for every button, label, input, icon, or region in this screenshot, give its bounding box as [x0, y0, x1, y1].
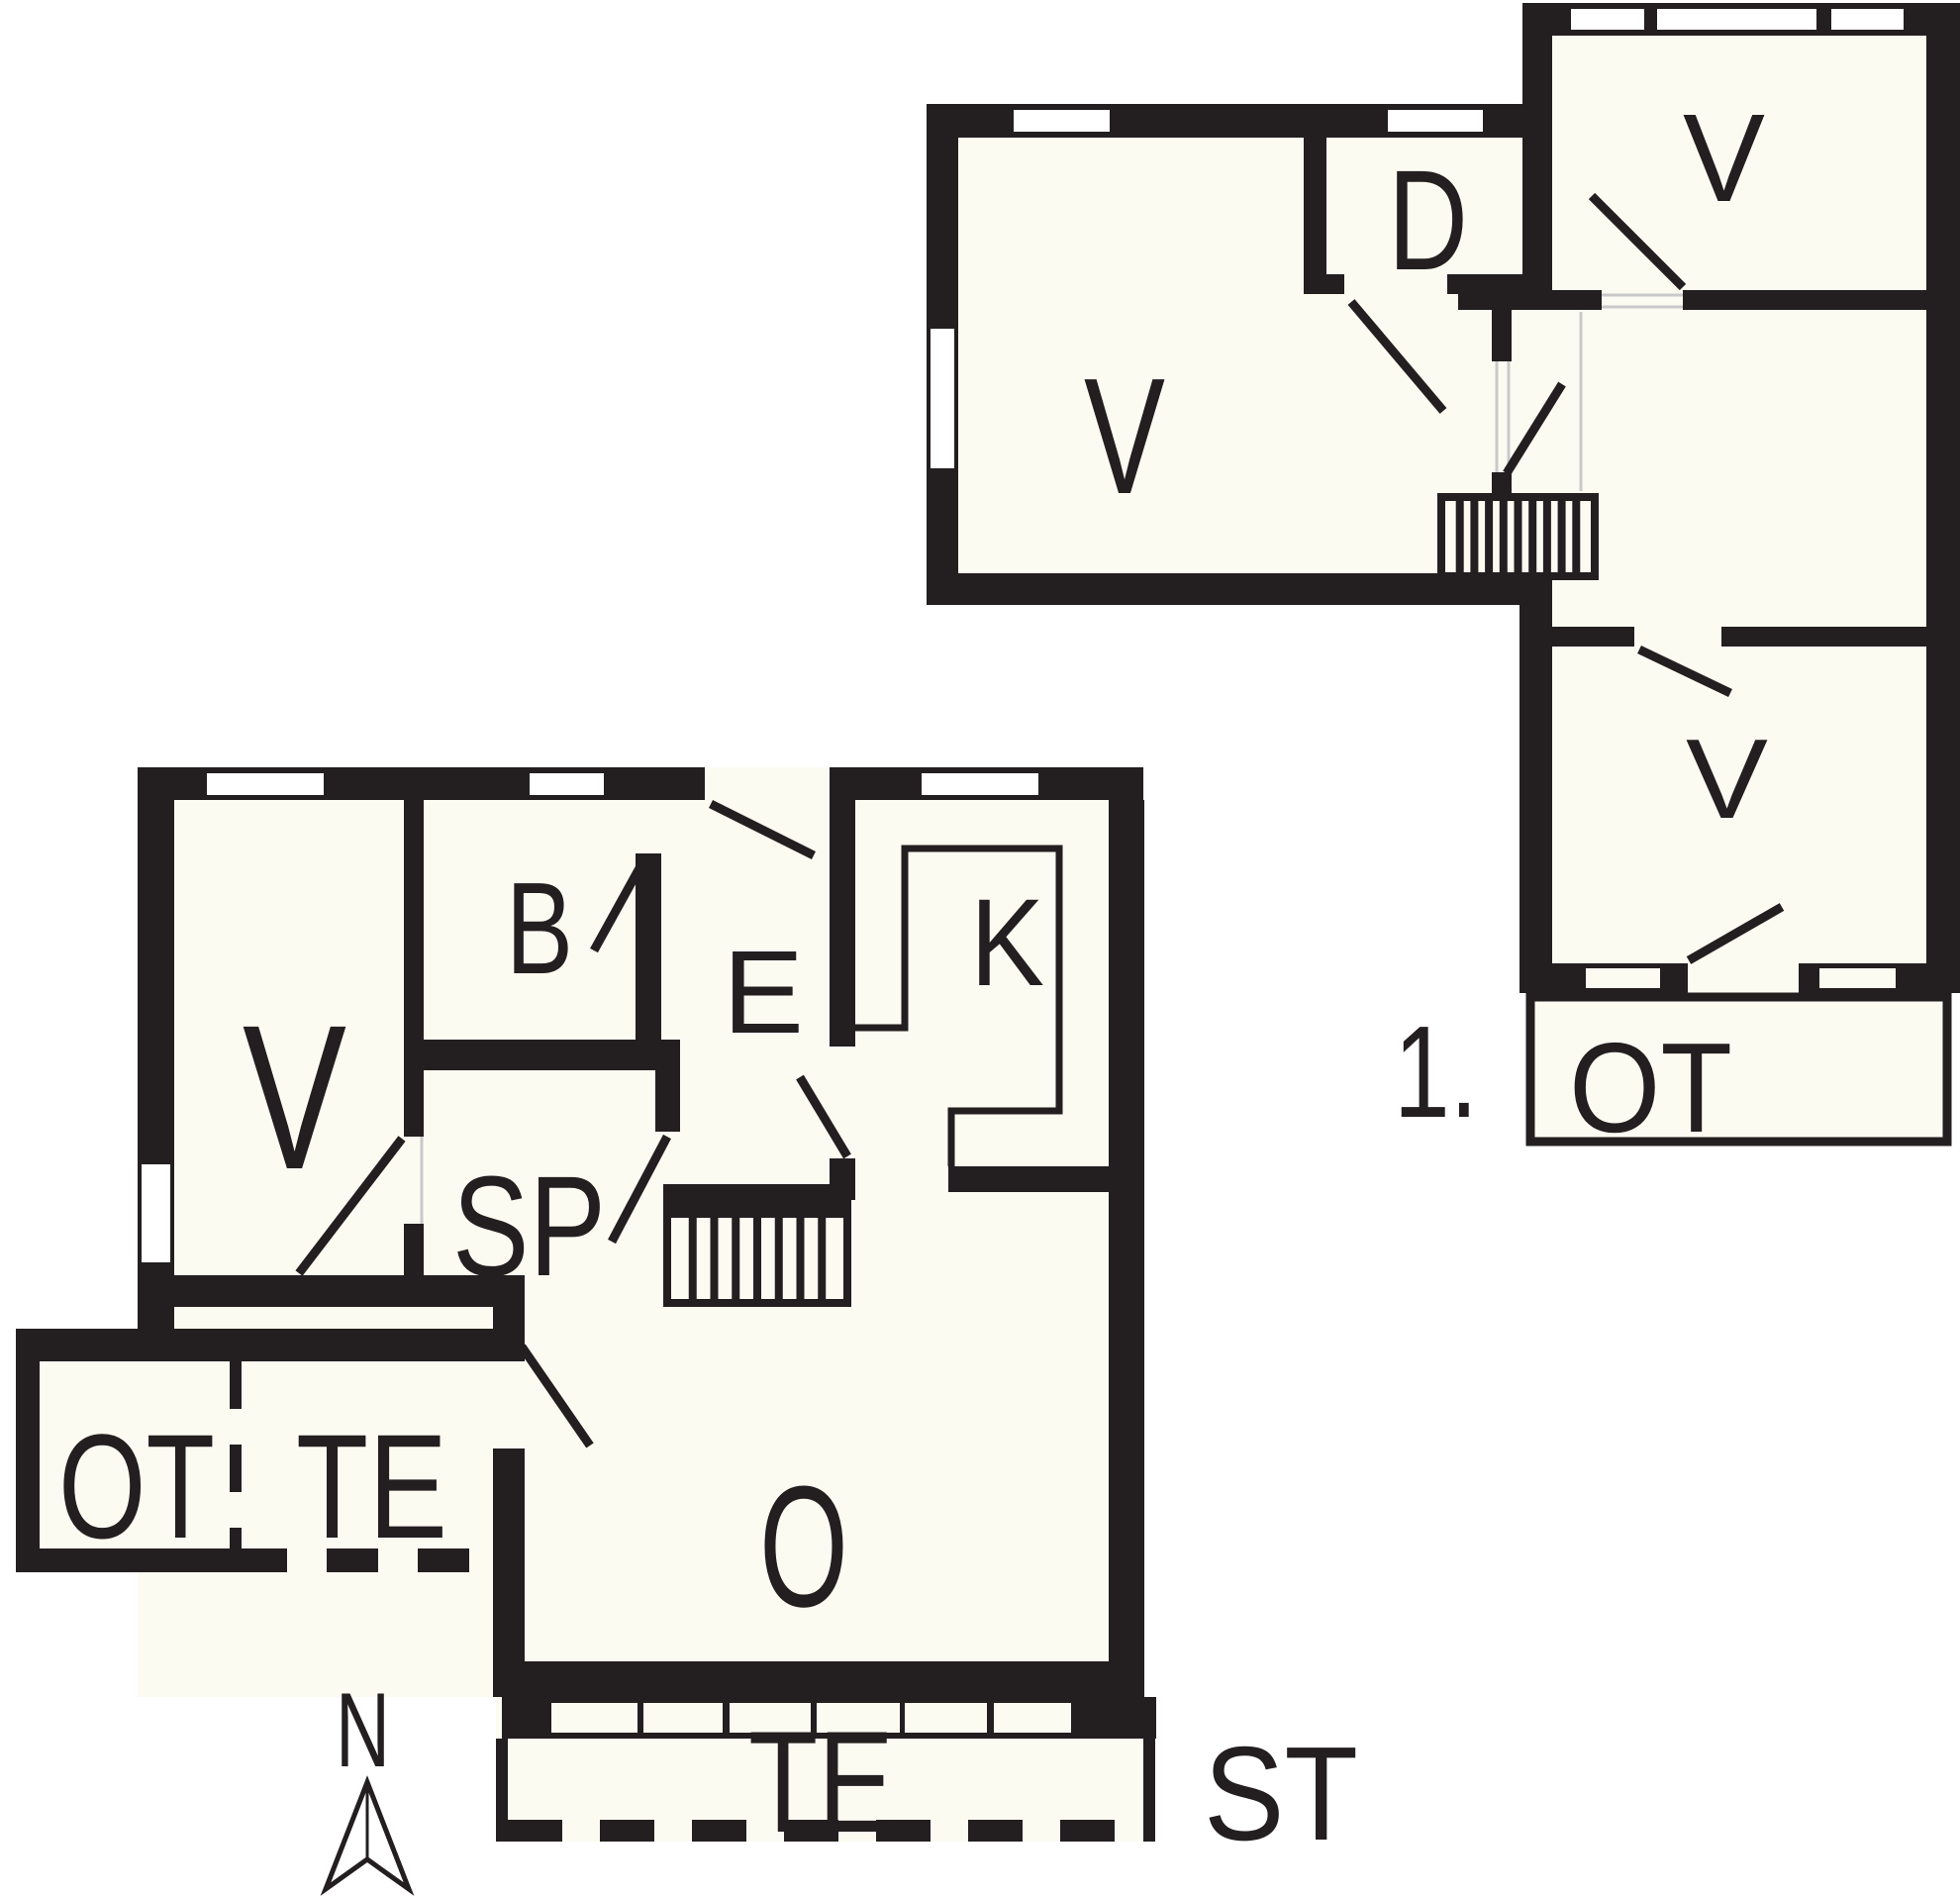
floor-label-1: 1.: [1394, 999, 1478, 1145]
wall: [1492, 310, 1512, 361]
wall: [424, 1040, 680, 1070]
window: [140, 1162, 172, 1264]
wall: [830, 767, 855, 1047]
wall: [1304, 274, 1344, 294]
room-label-st: ST: [1204, 1719, 1358, 1868]
wall: [1458, 290, 1602, 310]
window: [920, 771, 1040, 797]
wall: [1304, 138, 1326, 294]
wall: [1519, 605, 1552, 963]
wall: [16, 1361, 40, 1572]
wall: [496, 1739, 508, 1842]
room-label-e: E: [723, 927, 804, 1058]
room-label-v-first-top: V: [1683, 88, 1765, 228]
window-slot: [994, 1703, 1071, 1733]
window: [929, 327, 956, 470]
door-opening: [1688, 963, 1799, 993]
door-opening: [705, 767, 830, 800]
floor-plan-page: VBSPEKOOTTETESTVDVVOT1.N: [0, 0, 1960, 1897]
wall: [1522, 3, 1552, 310]
room-label-ot-first: OT: [1569, 1017, 1732, 1159]
wall: [1721, 627, 1926, 647]
north-arrow: N: [326, 1670, 409, 1889]
window-slot: [1586, 968, 1660, 988]
room-label-ot-annex: OT: [58, 1403, 215, 1569]
stairs: [663, 1210, 851, 1307]
stairs: [1437, 493, 1599, 580]
room-label-v-ground: V: [243, 983, 346, 1213]
window: [528, 771, 606, 797]
room-label-d: D: [1388, 141, 1468, 300]
wall: [1552, 627, 1634, 647]
wall: [1492, 472, 1512, 493]
wall: [655, 1070, 680, 1132]
room-label-v-first-bottom: V: [1686, 717, 1768, 843]
wall: [1683, 290, 1926, 310]
wall: [948, 1166, 1127, 1192]
wall: [16, 1329, 503, 1361]
wall: [404, 800, 424, 1137]
north-label: N: [336, 1670, 390, 1789]
window-slot: [1819, 968, 1896, 988]
floor-plan-drawing: VBSPEKOOTTETESTVDVVOT1.N: [0, 0, 1960, 1897]
window-slot: [551, 1703, 637, 1733]
window: [1012, 108, 1112, 134]
wall: [1926, 3, 1960, 963]
room-label-v-first-main: V: [1084, 345, 1165, 529]
wall: [493, 1661, 1143, 1697]
ground-floor: VBSPEKOOTTETEST: [16, 767, 1358, 1868]
window: [1829, 7, 1906, 32]
window-slot: [643, 1703, 723, 1733]
window: [1569, 7, 1646, 32]
window: [1386, 108, 1485, 134]
room-label-te-terrace: TE: [748, 1701, 894, 1862]
window: [205, 771, 326, 797]
window-slot: [905, 1703, 987, 1733]
room-label-te-annex: TE: [296, 1403, 447, 1569]
room-label-k: K: [970, 874, 1044, 1012]
wall: [493, 1448, 525, 1697]
wall: [636, 853, 661, 1040]
room-label-o: O: [759, 1449, 848, 1643]
room-label-b: B: [506, 855, 573, 1001]
wall: [663, 1184, 851, 1210]
window: [1655, 7, 1818, 32]
room-label-sp: SP: [452, 1147, 606, 1306]
wall: [1109, 800, 1144, 1697]
wall: [404, 1224, 424, 1275]
